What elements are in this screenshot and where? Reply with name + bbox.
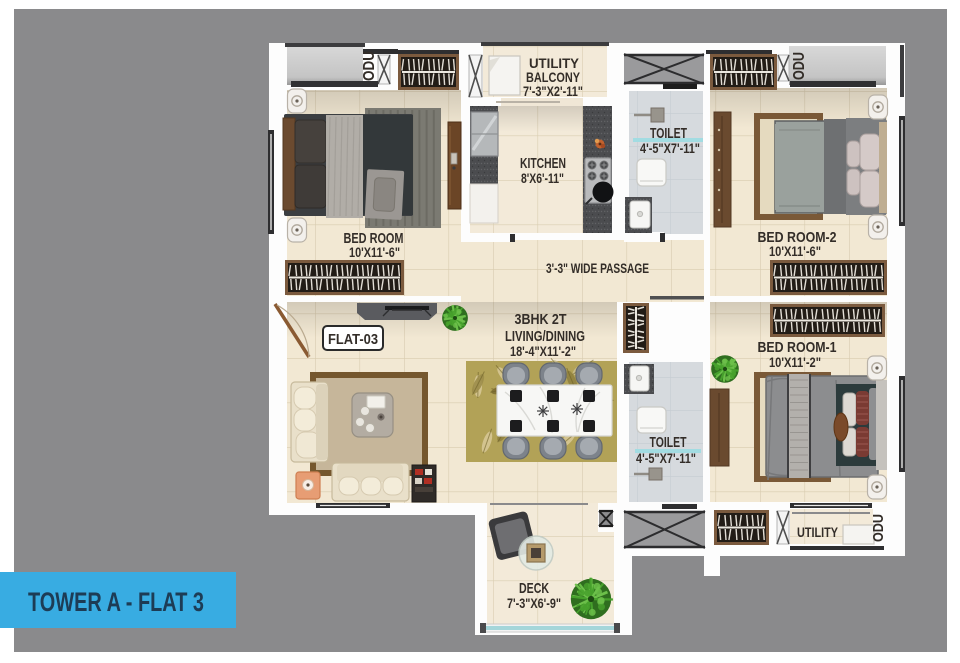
- svg-text:TOILET: TOILET: [650, 126, 687, 142]
- svg-text:8'X6'-11": 8'X6'-11": [521, 170, 564, 186]
- svg-text:10'X11'-6": 10'X11'-6": [769, 243, 821, 259]
- svg-text:3'-3" WIDE PASSAGE: 3'-3" WIDE PASSAGE: [546, 260, 649, 276]
- svg-text:TOILET: TOILET: [650, 435, 687, 451]
- svg-text:7'-3"X6'-9": 7'-3"X6'-9": [507, 595, 561, 611]
- svg-text:10'X11'-6": 10'X11'-6": [349, 244, 400, 260]
- svg-text:TOWER A - FLAT 3: TOWER A - FLAT 3: [28, 587, 204, 617]
- svg-text:BALCONY: BALCONY: [526, 69, 581, 85]
- svg-text:18'-4"X11'-2": 18'-4"X11'-2": [510, 343, 576, 359]
- svg-text:4'-5"X7'-11": 4'-5"X7'-11": [636, 451, 696, 466]
- svg-text:FLAT-03: FLAT-03: [328, 332, 378, 348]
- svg-text:ODU: ODU: [361, 51, 378, 81]
- svg-text:4'-5"X7'-11": 4'-5"X7'-11": [640, 141, 700, 156]
- svg-text:UTILITY: UTILITY: [797, 525, 838, 540]
- svg-text:10'X11'-2": 10'X11'-2": [769, 354, 821, 370]
- svg-text:ODU: ODU: [791, 52, 808, 80]
- svg-text:ODU: ODU: [870, 514, 887, 542]
- svg-text:7'-3"X2'-11": 7'-3"X2'-11": [523, 84, 583, 99]
- svg-text:3BHK 2T: 3BHK 2T: [515, 312, 567, 328]
